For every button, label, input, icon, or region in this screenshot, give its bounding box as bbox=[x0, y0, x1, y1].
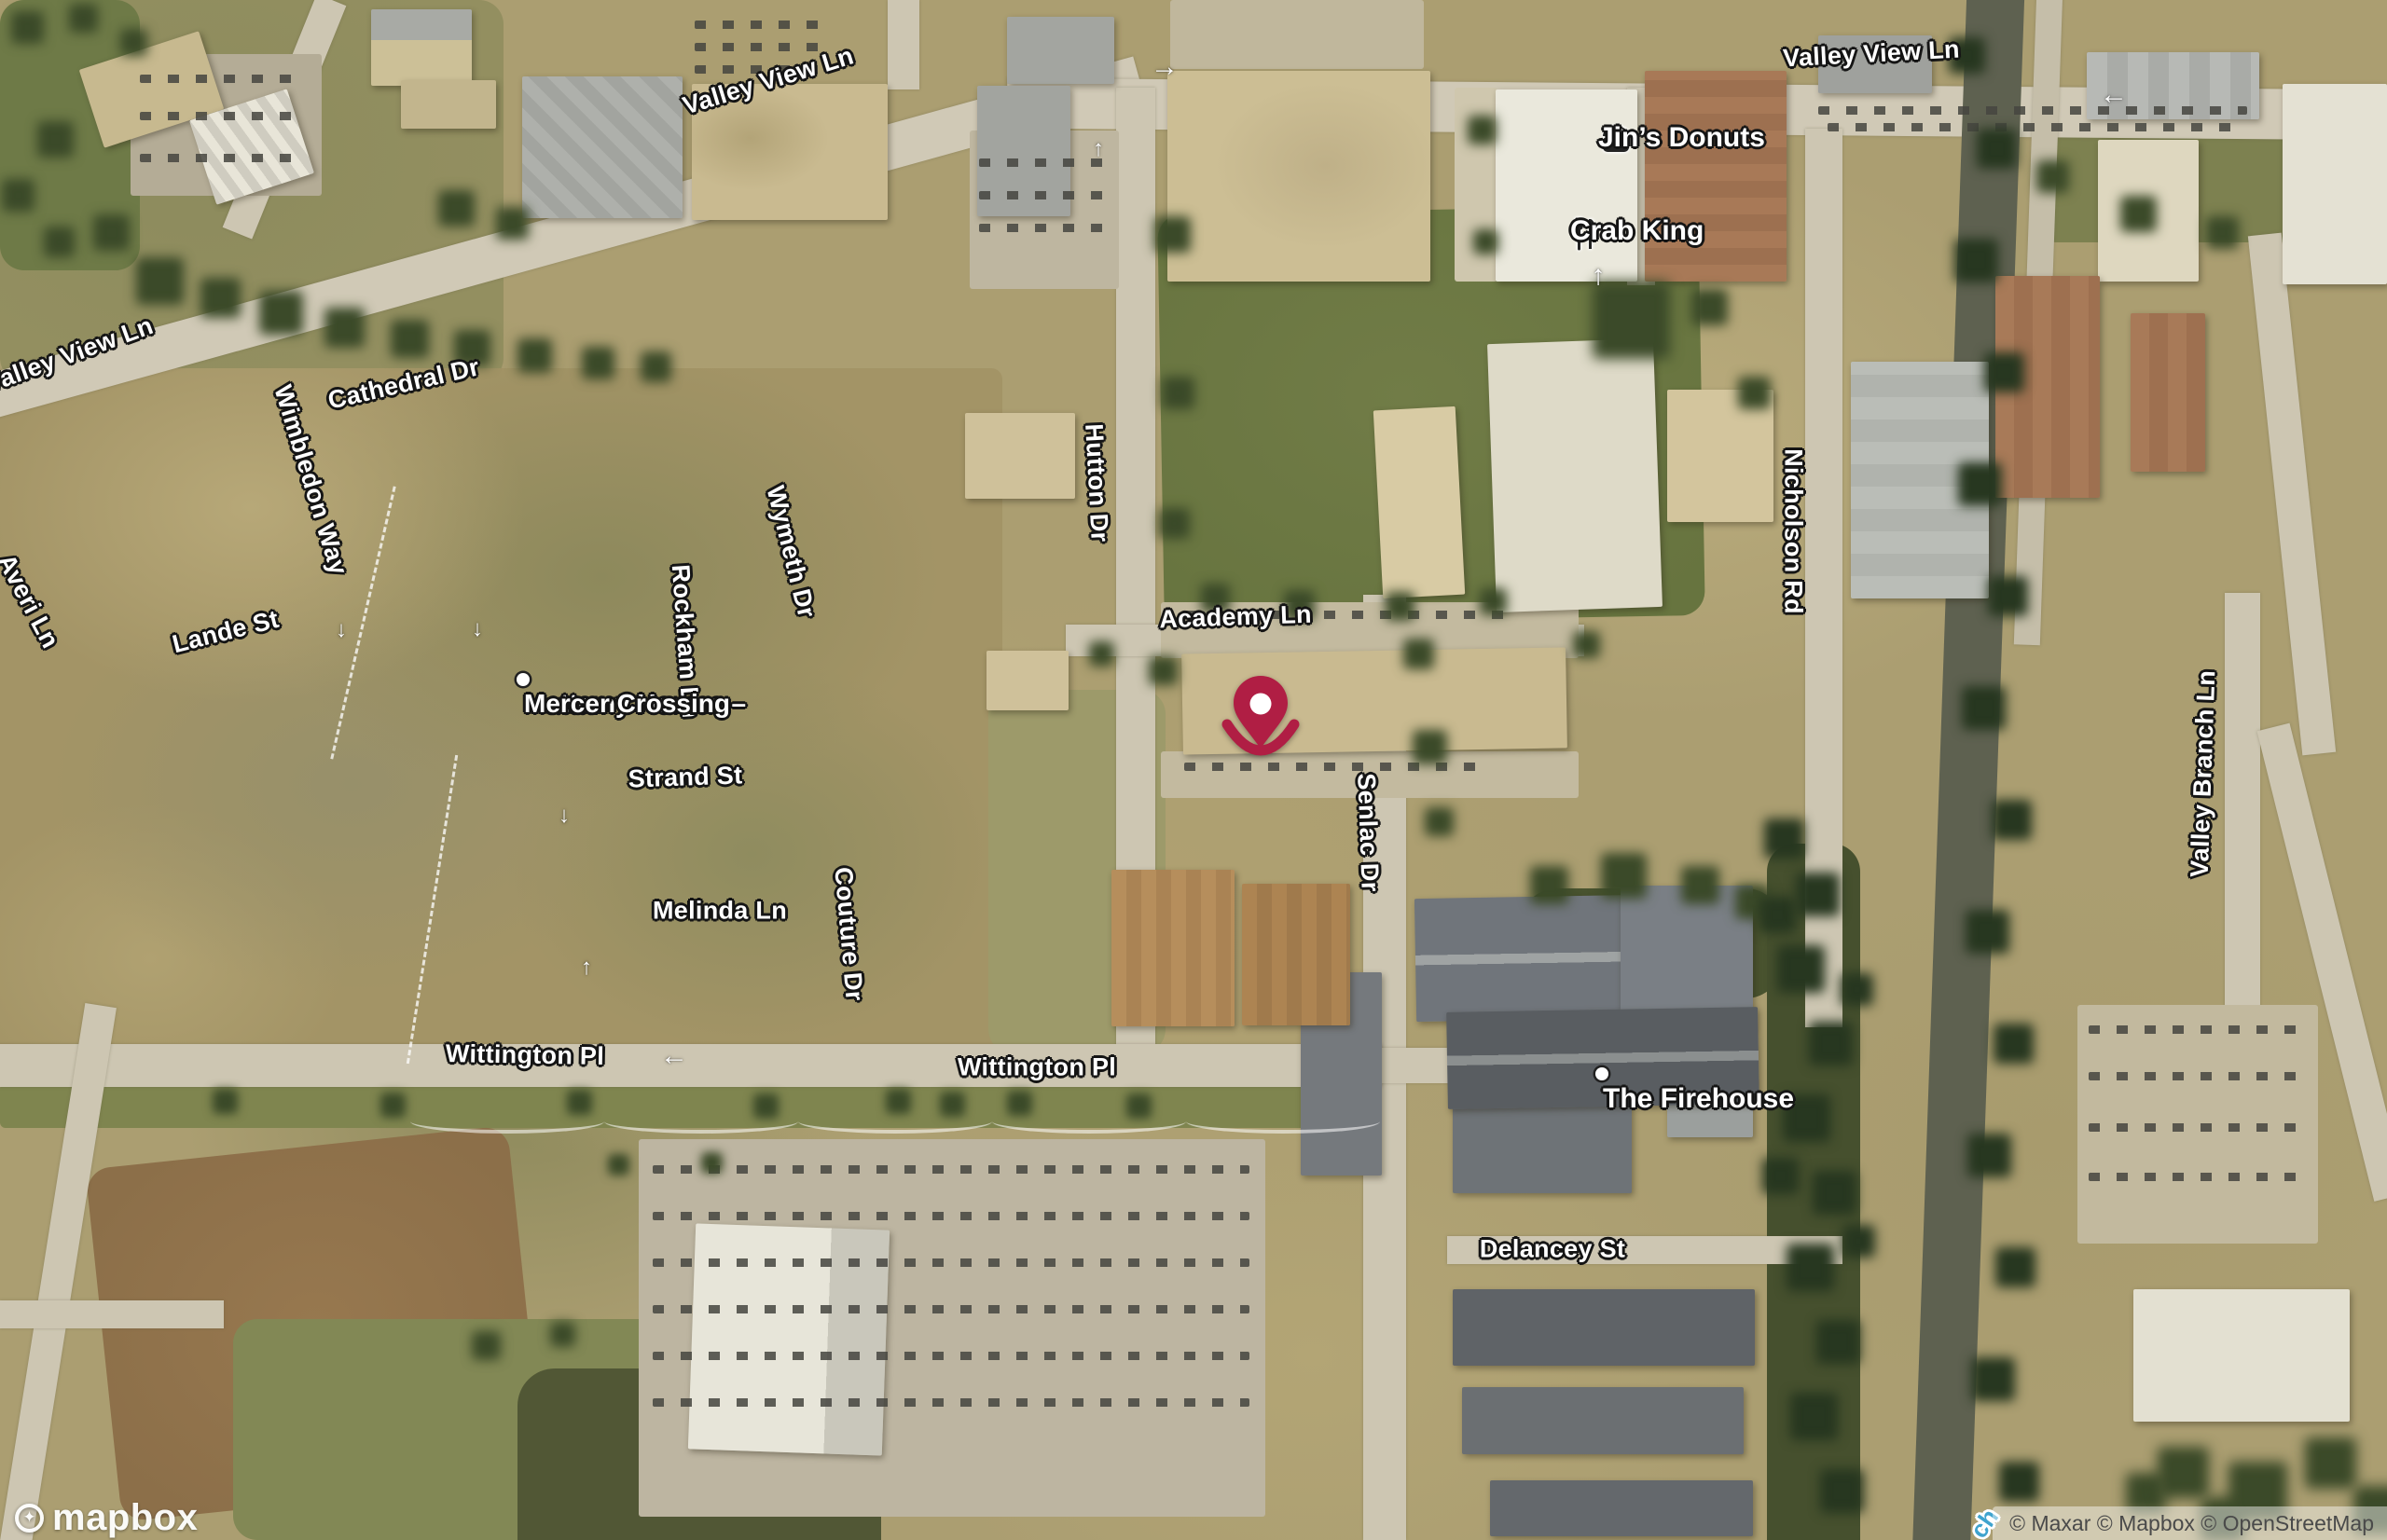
map-attribution[interactable]: © Maxar © Mapbox © OpenStreetMap bbox=[1993, 1506, 2387, 1540]
car-row bbox=[2089, 1123, 2312, 1132]
car-row bbox=[695, 43, 835, 51]
street-label-nicholson-rd: Nicholson Rd bbox=[1781, 448, 1806, 614]
sidewalk-curve bbox=[1186, 1109, 1380, 1134]
street-label-wittington-pl: Wittington Pl bbox=[958, 1055, 1116, 1080]
building bbox=[401, 80, 496, 129]
road-arrow-icon: ← bbox=[660, 1040, 688, 1072]
building bbox=[1496, 89, 1637, 282]
building bbox=[371, 9, 472, 86]
railroad-corridor bbox=[1912, 0, 2025, 1540]
car-row bbox=[653, 1305, 1249, 1313]
street-label-wittington-pl: Wittington Pl bbox=[446, 1041, 605, 1069]
road-arrow-icon: ↓ bbox=[336, 617, 347, 643]
road-nicholson-rd bbox=[1805, 129, 1842, 1027]
car-row bbox=[2089, 1025, 2312, 1034]
street-label-academy-ln: Academy Ln bbox=[1159, 602, 1312, 633]
road-valley-branch-ln bbox=[2225, 593, 2260, 1031]
sidewalk-curve bbox=[992, 1109, 1186, 1134]
poi-label: Crab King bbox=[1570, 216, 1704, 246]
road-arrow-icon: ← bbox=[2100, 79, 2128, 111]
building bbox=[1487, 338, 1663, 612]
sidewalk-curve bbox=[604, 1109, 798, 1134]
road bbox=[0, 1300, 224, 1328]
building bbox=[1453, 1289, 1755, 1366]
building-under-construction bbox=[1111, 870, 1235, 1026]
tree-cluster bbox=[0, 0, 3, 3]
car-row bbox=[653, 1165, 1249, 1174]
poi-dot-icon bbox=[1595, 1067, 1608, 1080]
building bbox=[1621, 886, 1753, 1027]
road bbox=[2248, 233, 2336, 756]
street-label-melinda-ln: Melinda Ln bbox=[653, 899, 787, 924]
car-row bbox=[2089, 1173, 2312, 1181]
car-row bbox=[1828, 123, 2247, 131]
building bbox=[1667, 390, 1773, 522]
building bbox=[1851, 362, 1989, 598]
poi-dot-icon bbox=[517, 673, 530, 686]
parking-lot bbox=[1170, 0, 1424, 69]
sidewalk-curve bbox=[410, 1109, 604, 1134]
street-label-valley-branch-ln: Valley Branch Ln bbox=[2187, 669, 2220, 877]
building bbox=[1007, 17, 1114, 84]
road-arrow-icon: → bbox=[1151, 51, 1179, 83]
car-row bbox=[979, 191, 1110, 199]
building bbox=[1490, 1480, 1753, 1536]
car-row bbox=[653, 1398, 1249, 1407]
building bbox=[2131, 313, 2205, 472]
road-arrow-icon: ↑ bbox=[1093, 136, 1104, 162]
building bbox=[1995, 276, 2100, 498]
building-under-construction bbox=[1242, 884, 1350, 1025]
car-row bbox=[695, 21, 835, 29]
road-arrow-icon: ↑ bbox=[1592, 260, 1606, 292]
road-arrow-icon: ↓ bbox=[559, 803, 570, 829]
building bbox=[522, 76, 683, 218]
road-arrow-icon: ↓ bbox=[472, 616, 483, 642]
satellite-map[interactable]: → ↑ ↑ ← ← ↓ ↓ ↑ ↓ Valley View Ln Valley … bbox=[0, 0, 2387, 1540]
car-row bbox=[2089, 1072, 2312, 1080]
street-label-hutton-dr: Hutton Dr bbox=[1081, 423, 1112, 543]
building bbox=[2098, 140, 2199, 282]
building bbox=[2283, 84, 2387, 284]
car-row bbox=[653, 1352, 1249, 1360]
car-row bbox=[979, 224, 1110, 232]
mapbox-logo-icon: ✦ bbox=[15, 1504, 44, 1533]
car-row bbox=[140, 154, 308, 162]
building bbox=[1373, 406, 1465, 598]
car-row bbox=[653, 1258, 1249, 1267]
building bbox=[987, 651, 1069, 710]
building bbox=[1167, 71, 1430, 282]
road-wittington-pl bbox=[0, 1044, 1382, 1087]
location-pin[interactable] bbox=[1216, 670, 1305, 767]
poi-label: Jin’s Donuts bbox=[1598, 123, 1765, 153]
building bbox=[1414, 895, 1644, 1022]
building bbox=[1462, 1387, 1744, 1454]
car-row bbox=[653, 1212, 1249, 1220]
mapbox-logo[interactable]: ✦ mapbox bbox=[15, 1497, 198, 1538]
street-label-strand-st: Strand St bbox=[628, 763, 743, 791]
car-row bbox=[1818, 106, 2247, 115]
street-label-valley-view-ln: Valley View Ln bbox=[1783, 37, 1961, 72]
pin-hole bbox=[1250, 694, 1272, 715]
building bbox=[1645, 71, 1787, 282]
building bbox=[965, 413, 1075, 499]
poi-label: Mercer Crossing bbox=[524, 690, 730, 718]
poi-label: The Firehouse bbox=[1603, 1084, 1794, 1114]
road-arrow-icon: ↑ bbox=[581, 955, 592, 981]
parking-lot bbox=[1455, 88, 1497, 282]
mapbox-wordmark: mapbox bbox=[52, 1499, 198, 1536]
car-row bbox=[140, 75, 308, 83]
street-label-senlac-dr: Senlac Dr bbox=[1353, 773, 1382, 892]
sidewalk-curve bbox=[798, 1109, 992, 1134]
building bbox=[2133, 1289, 2350, 1422]
road bbox=[888, 0, 919, 89]
street-label-delancey-st: Delancey St bbox=[1480, 1237, 1625, 1262]
car-row bbox=[979, 158, 1110, 167]
car-row bbox=[140, 112, 308, 120]
